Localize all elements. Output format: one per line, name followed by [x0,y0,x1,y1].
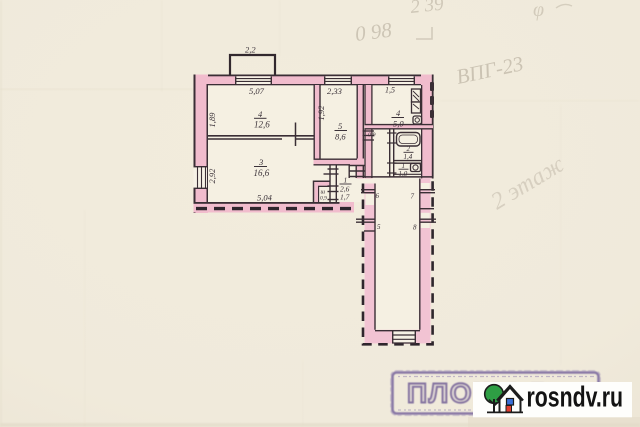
svg-text:0 98: 0 98 [354,18,394,46]
svg-text:7: 7 [411,193,415,201]
svg-text:0,9: 0,9 [320,196,327,202]
svg-text:2,92: 2,92 [207,168,217,184]
svg-text:16,6: 16,6 [254,168,270,178]
svg-text:5,0: 5,0 [393,119,404,129]
svg-text:1,5: 1,5 [385,86,395,95]
svg-text:2,2: 2,2 [245,45,256,55]
svg-text:1,89: 1,89 [207,112,217,128]
svg-text:2: 2 [407,145,411,153]
svg-text:rosndv.ru: rosndv.ru [527,382,624,414]
svg-text:0,9: 0,9 [368,133,376,139]
svg-text:8,6: 8,6 [335,132,346,142]
svg-text:1,4: 1,4 [404,153,413,161]
svg-text:5: 5 [338,121,342,131]
svg-text:1,7: 1,7 [340,193,350,202]
svg-text:5,04: 5,04 [257,193,273,203]
svg-text:φ: φ [533,0,544,21]
svg-text:12,6: 12,6 [254,120,270,130]
svg-text:2,33: 2,33 [327,86,342,96]
svg-text:5,07: 5,07 [249,86,265,96]
svg-text:1,92: 1,92 [316,105,326,121]
svg-text:3: 3 [258,157,263,167]
svg-text:1: 1 [344,176,348,185]
svg-text:8: 8 [413,224,417,232]
svg-text:6: 6 [376,192,380,200]
svg-text:5: 5 [377,223,381,231]
svg-text:1,0: 1,0 [399,170,408,178]
